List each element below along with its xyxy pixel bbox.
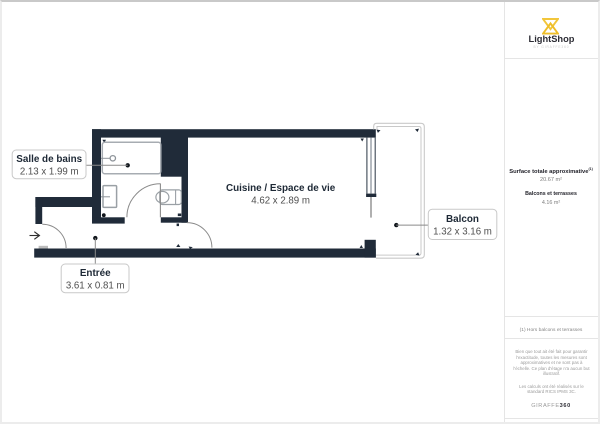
svg-text:Salle de bains: Salle de bains bbox=[16, 154, 82, 165]
svg-text:1.32 x 3.16 m: 1.32 x 3.16 m bbox=[433, 227, 492, 238]
svg-text:4.62 x 2.89 m: 4.62 x 2.89 m bbox=[251, 196, 310, 207]
svg-text:2.13 x 1.99 m: 2.13 x 1.99 m bbox=[20, 166, 79, 177]
svg-text:Entrée: Entrée bbox=[80, 268, 111, 279]
svg-text:3.61 x 0.81 m: 3.61 x 0.81 m bbox=[66, 280, 125, 291]
svg-text:Balcon: Balcon bbox=[446, 214, 479, 225]
svg-text:Cuisine / Espace de vie: Cuisine / Espace de vie bbox=[226, 183, 336, 194]
